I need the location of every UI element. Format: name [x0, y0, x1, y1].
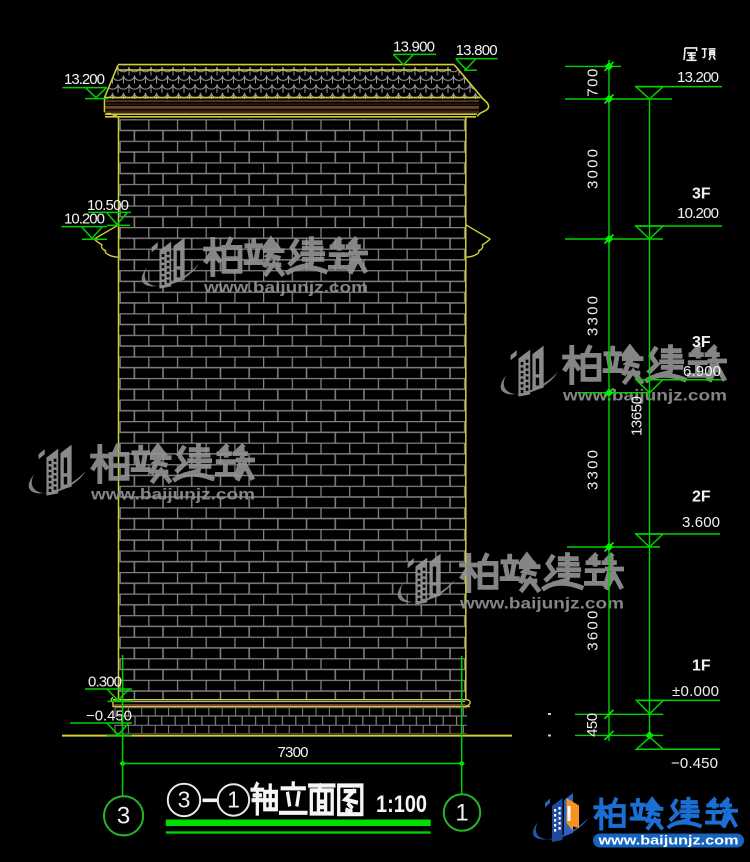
svg-text:2F: 2F — [692, 489, 711, 506]
svg-text:13.900: 13.900 — [393, 39, 435, 56]
svg-text:10.200: 10.200 — [677, 205, 719, 222]
svg-text:3: 3 — [178, 787, 191, 813]
svg-text:www.baijunjz.com: www.baijunjz.com — [597, 834, 738, 848]
svg-text:3F: 3F — [692, 334, 711, 351]
svg-text:13.200: 13.200 — [677, 69, 719, 86]
svg-text:1: 1 — [227, 787, 240, 813]
svg-text:6.900: 6.900 — [683, 363, 721, 380]
svg-text:3: 3 — [117, 803, 130, 830]
svg-text:−0.450: −0.450 — [86, 708, 132, 725]
svg-text:10.200: 10.200 — [64, 211, 105, 228]
svg-text:450: 450 — [584, 713, 601, 737]
svg-text:13.800: 13.800 — [456, 42, 498, 59]
svg-text:700: 700 — [585, 69, 602, 97]
svg-text:−0.450: −0.450 — [671, 755, 718, 772]
svg-text:13650: 13650 — [629, 396, 646, 436]
svg-text:1: 1 — [455, 800, 468, 827]
svg-text:±0.000: ±0.000 — [672, 683, 719, 700]
svg-text:0.300: 0.300 — [88, 674, 122, 691]
svg-text:1:100: 1:100 — [376, 791, 427, 818]
svg-text:1F: 1F — [692, 658, 711, 675]
svg-text:13.200: 13.200 — [64, 71, 105, 88]
svg-text:3F: 3F — [692, 186, 711, 203]
svg-text:3.600: 3.600 — [682, 514, 720, 531]
svg-text:7300: 7300 — [278, 744, 309, 761]
